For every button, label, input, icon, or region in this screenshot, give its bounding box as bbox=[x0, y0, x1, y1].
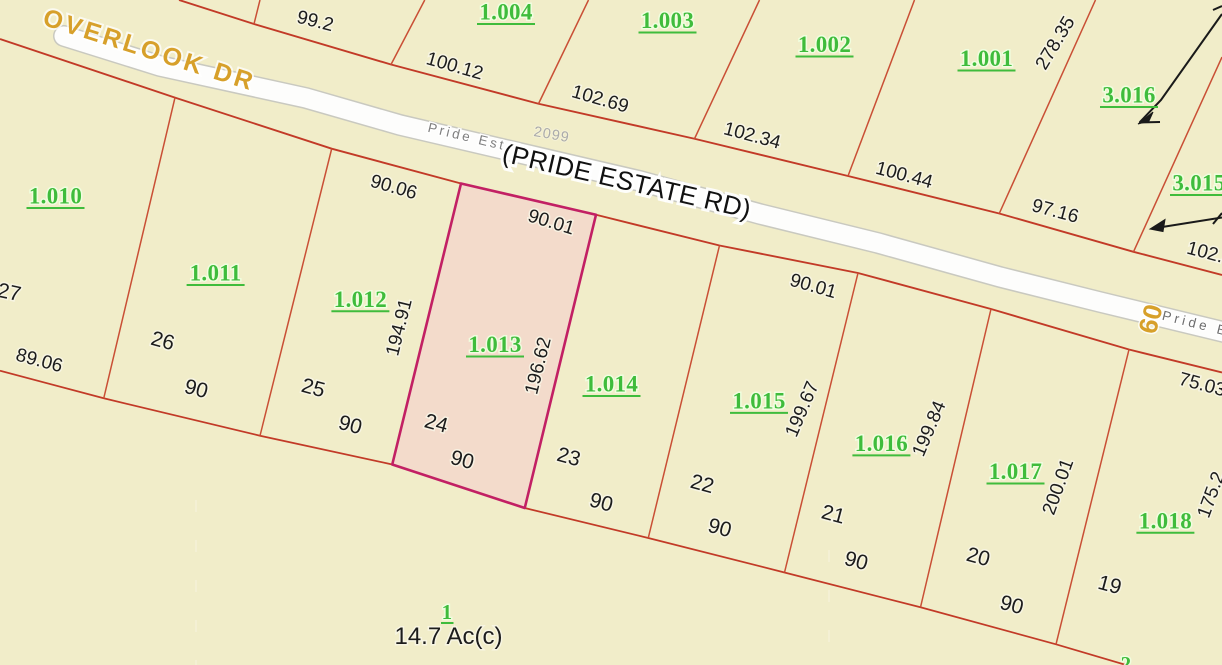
svg-text:1.014: 1.014 bbox=[585, 372, 638, 397]
svg-text:1.016: 1.016 bbox=[855, 431, 908, 456]
svg-text:1.015: 1.015 bbox=[732, 388, 785, 413]
svg-text:1.013: 1.013 bbox=[468, 332, 521, 357]
svg-text:1.012: 1.012 bbox=[334, 287, 387, 312]
svg-text:1: 1 bbox=[442, 600, 453, 624]
svg-text:3.015: 3.015 bbox=[1172, 171, 1222, 196]
svg-text:1.003: 1.003 bbox=[641, 8, 694, 33]
svg-text:1.017: 1.017 bbox=[989, 459, 1042, 484]
svg-text:3.016: 3.016 bbox=[1102, 83, 1155, 108]
svg-text:1.002: 1.002 bbox=[798, 32, 851, 57]
svg-text:1.001: 1.001 bbox=[960, 46, 1013, 71]
svg-text:1.018: 1.018 bbox=[1139, 508, 1192, 533]
svg-text:14.7 Ac(c): 14.7 Ac(c) bbox=[394, 623, 502, 650]
svg-text:2: 2 bbox=[1121, 652, 1132, 665]
svg-text:1.011: 1.011 bbox=[190, 261, 242, 286]
svg-text:1.010: 1.010 bbox=[29, 184, 82, 209]
svg-text:1.004: 1.004 bbox=[479, 0, 532, 25]
